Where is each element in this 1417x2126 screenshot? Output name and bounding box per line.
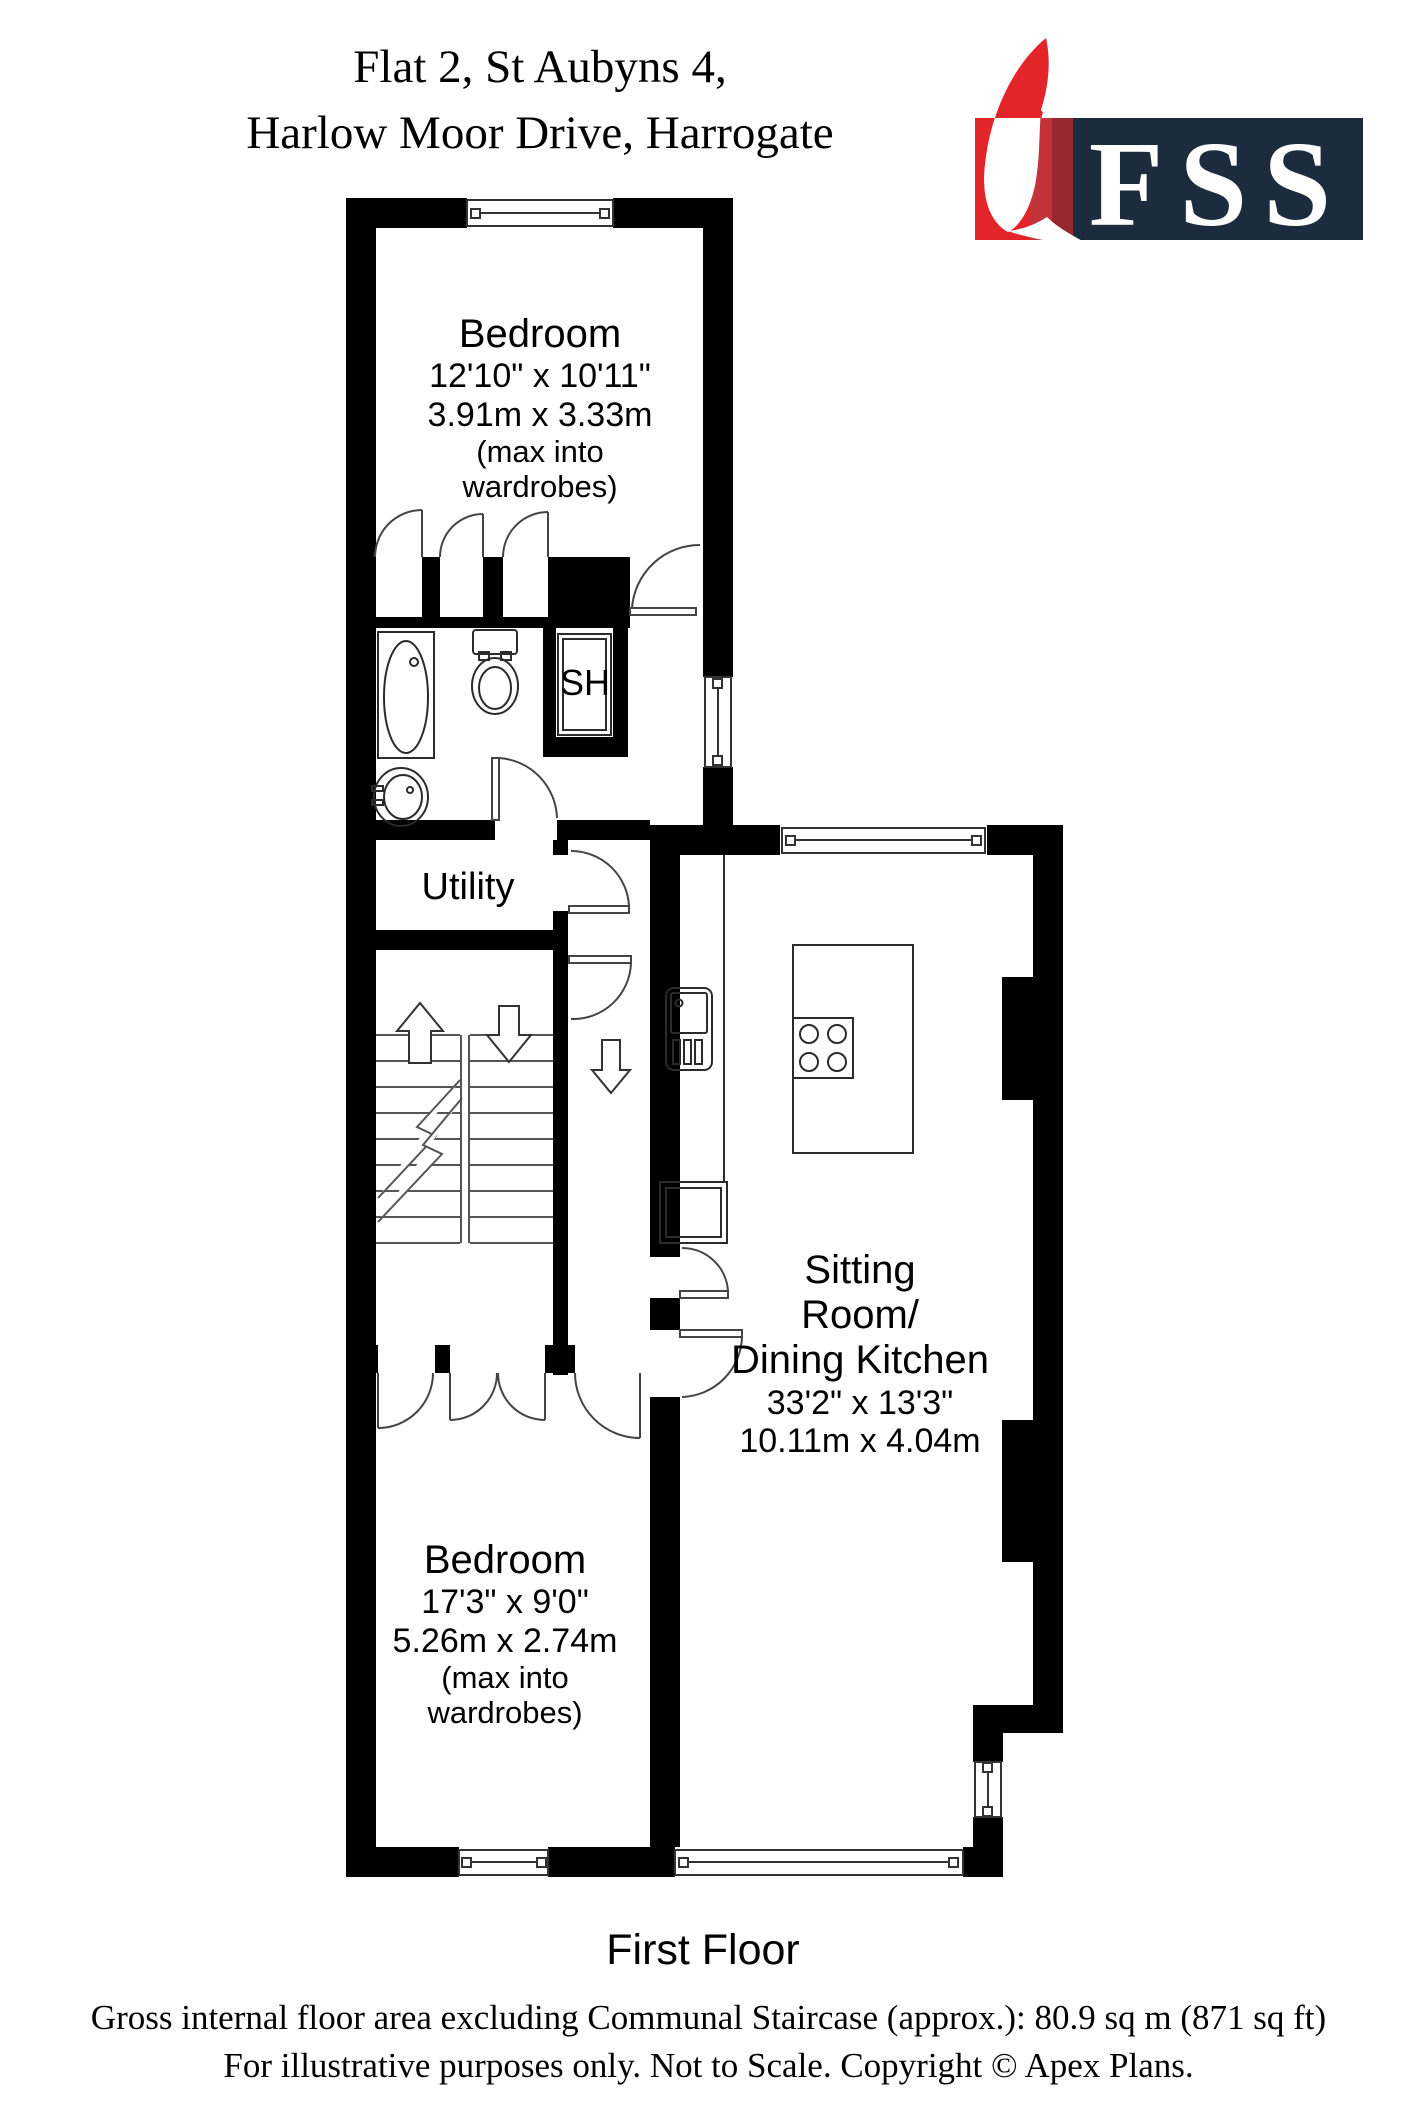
- bedroom2-label: Bedroom 17'3" x 9'0" 5.26m x 2.74m (max …: [393, 1538, 618, 1730]
- wall-segment: [963, 1847, 1003, 1877]
- room-dims-imperial: 12'10" x 10'11": [428, 357, 653, 395]
- wall-segment: [703, 228, 733, 677]
- floor-name: First Floor: [606, 1926, 800, 1975]
- toilet: [472, 630, 518, 714]
- wardrobe-door: [378, 1373, 433, 1428]
- room-dims-imperial: 33'2" x 13'3": [731, 1384, 989, 1422]
- address-line-1: Flat 2, St Aubyns 4,: [0, 34, 1080, 100]
- bedroom1-label: Bedroom 12'10" x 10'11" 3.91m x 3.33m (m…: [428, 312, 653, 504]
- stair-arrows: [397, 1003, 630, 1093]
- wall-segment: [376, 617, 630, 628]
- room-note: wardrobes): [428, 469, 653, 504]
- wall-segment: [346, 1345, 378, 1373]
- stair-stringer: [461, 1035, 469, 1243]
- wall-segment: [1033, 855, 1063, 1705]
- wall-segment: [346, 198, 467, 228]
- wall-segment: [650, 1397, 680, 1847]
- floorplan-page: { "header": { "address_line1": "Flat 2, …: [0, 0, 1417, 2126]
- wall-segment: [553, 950, 568, 1375]
- wall-segment: [435, 1345, 450, 1373]
- wall-segment: [650, 825, 780, 855]
- window-sitting-bottom: [675, 1850, 963, 1875]
- wardrobe-door-double: [450, 1373, 545, 1420]
- room-name: Dining Kitchen: [731, 1338, 989, 1383]
- wardrobe-door: [375, 510, 422, 557]
- door-bedroom1: [630, 545, 700, 615]
- door-bathroom: [492, 758, 557, 820]
- door-entrance: [569, 956, 631, 1019]
- window-bedroom2-bottom: [459, 1850, 548, 1875]
- wall-segment: [703, 767, 733, 825]
- door-utility: [569, 851, 629, 913]
- address-line-2: Harlow Moor Drive, Harrogate: [0, 100, 1080, 166]
- stair-treads: [376, 1035, 553, 1243]
- window-sitting-right: [975, 1762, 1001, 1817]
- room-dims-metric: 10.11m x 4.04m: [731, 1422, 989, 1460]
- wardrobe-door: [503, 512, 548, 557]
- wall-segment: [650, 1298, 680, 1330]
- chimney-breast-2: [1002, 1420, 1033, 1562]
- room-dims-metric: 5.26m x 2.74m: [393, 1622, 618, 1660]
- floorplan-drawing: FSS: [0, 0, 1417, 2126]
- wall-segment: [973, 1705, 1063, 1733]
- utility-label: Utility: [422, 866, 515, 909]
- window-sitting-top: [782, 828, 985, 853]
- room-name: Bedroom: [428, 312, 653, 357]
- wall-segment: [973, 1733, 1003, 1762]
- sitting-room-label: Sitting Room/ Dining Kitchen 33'2" x 13'…: [731, 1248, 989, 1460]
- floor-area-text: Gross internal floor area excluding Comm…: [0, 1998, 1417, 2038]
- logo-text: FSS: [1089, 117, 1347, 252]
- room-dims-metric: 3.91m x 3.33m: [428, 396, 653, 434]
- basin: [372, 768, 428, 826]
- door-sitting: [680, 1248, 728, 1298]
- room-name: Sitting: [731, 1248, 989, 1293]
- wall-segment: [553, 840, 568, 855]
- wall-segment: [346, 930, 568, 950]
- kitchen-island: [793, 945, 913, 1153]
- bathtub: [378, 632, 434, 758]
- down-arrow-icon: [487, 1006, 531, 1062]
- wall-segment: [346, 820, 495, 840]
- door-bedroom2: [575, 1373, 640, 1438]
- room-name: Bedroom: [393, 1538, 618, 1583]
- room-note: (max into: [393, 1660, 618, 1695]
- wall-segment: [548, 1847, 675, 1877]
- chimney-breast-1: [1002, 977, 1033, 1100]
- wall-segment: [557, 820, 650, 840]
- wall-segment: [987, 825, 1063, 855]
- room-name: Room/: [731, 1293, 989, 1338]
- up-arrow-icon: [397, 1003, 443, 1063]
- staircase: [376, 1003, 630, 1243]
- wall-segment: [545, 1345, 575, 1373]
- wall-segment: [543, 737, 628, 757]
- shower-label: SH: [560, 662, 610, 704]
- wall-segment: [613, 198, 733, 228]
- wardrobe-door: [440, 514, 483, 557]
- down-arrow-icon: [592, 1040, 630, 1093]
- disclaimer-text: For illustrative purposes only. Not to S…: [0, 2046, 1417, 2086]
- window-hall-right: [705, 677, 731, 767]
- wall-segment: [346, 228, 376, 1877]
- plan-title: Flat 2, St Aubyns 4, Harlow Moor Drive, …: [0, 34, 1080, 166]
- room-note: wardrobes): [393, 1695, 618, 1730]
- wall-segment: [543, 628, 556, 737]
- wall-segment: [346, 1847, 459, 1877]
- window-bedroom1-top: [467, 200, 613, 226]
- room-dims-imperial: 17'3" x 9'0": [393, 1583, 618, 1621]
- stair-break-line: [378, 1080, 462, 1222]
- room-note: (max into: [428, 434, 653, 469]
